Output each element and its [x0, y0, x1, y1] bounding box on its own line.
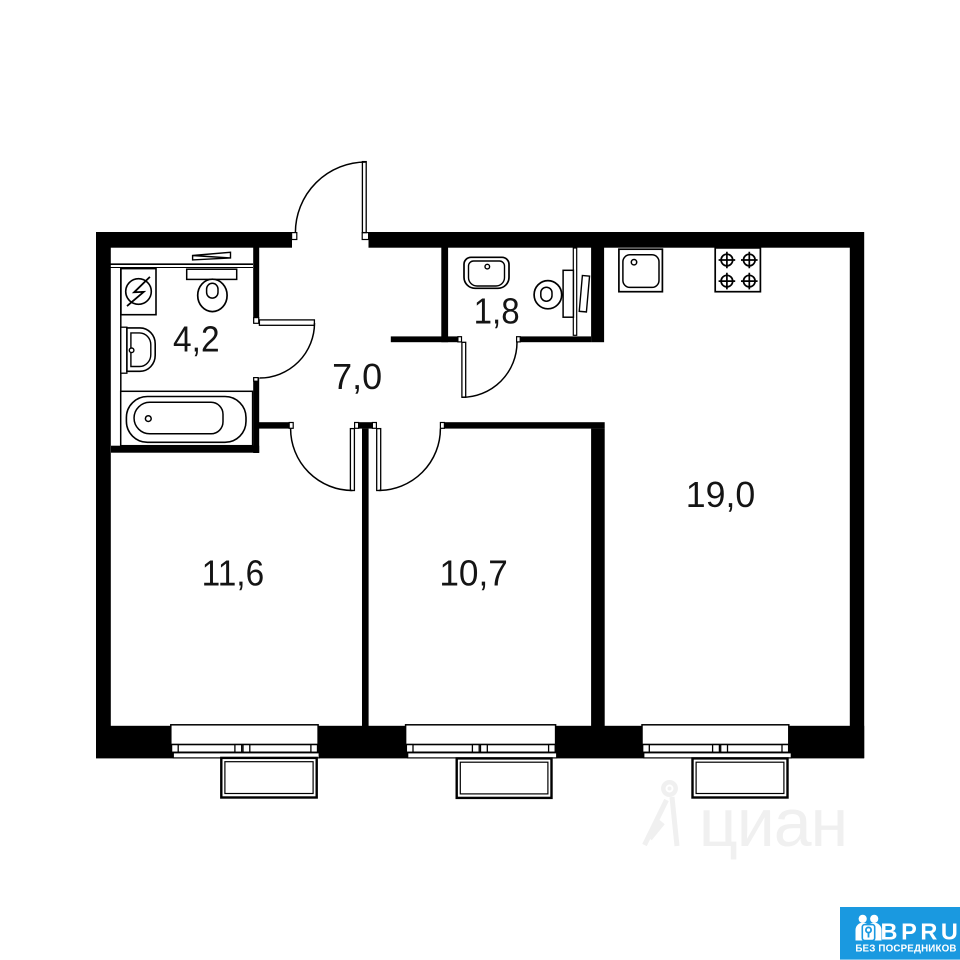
- svg-text:1,8: 1,8: [474, 291, 520, 332]
- svg-text:4,2: 4,2: [173, 319, 220, 360]
- svg-text:11,6: 11,6: [202, 553, 265, 594]
- svg-text:10,7: 10,7: [439, 552, 508, 593]
- svg-text:BPRU: BPRU: [881, 918, 960, 944]
- svg-text:7,0: 7,0: [332, 356, 382, 397]
- svg-text:19,0: 19,0: [686, 474, 756, 515]
- svg-text:БЕЗ ПОСРЕДНИКОВ: БЕЗ ПОСРЕДНИКОВ: [855, 944, 956, 955]
